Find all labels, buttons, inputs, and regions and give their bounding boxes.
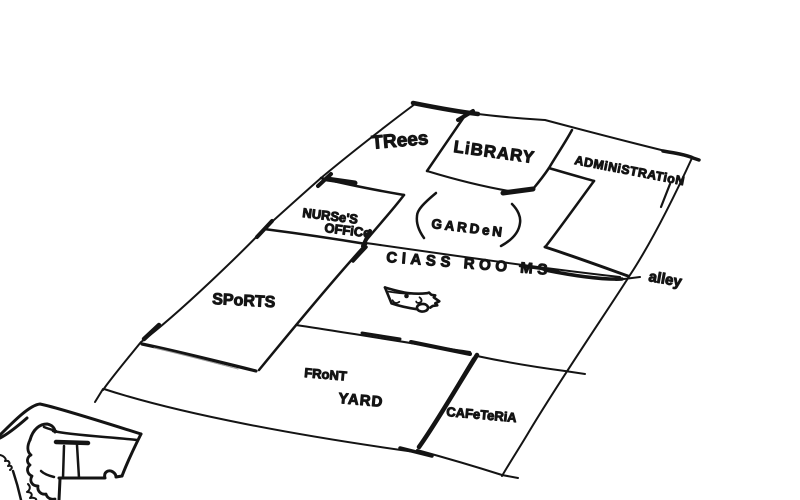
svg-text:ADMiNiSTRATioN: ADMiNiSTRATioN [573,153,686,188]
svg-text:YARD: YARD [338,390,384,411]
svg-text:alley: alley [647,268,683,291]
svg-text:CAFeTeRiA: CAFeTeRiA [446,404,518,425]
svg-text:LiBRARY: LiBRARY [452,137,536,167]
svg-text:SPoRTS: SPoRTS [212,291,276,311]
svg-text:GARDeN: GARDeN [431,216,506,240]
svg-text:FRoNT: FRoNT [304,365,348,384]
svg-text:TRees: TRees [371,128,430,154]
svg-text:ClASS ROO MS: ClASS ROO MS [386,249,553,279]
